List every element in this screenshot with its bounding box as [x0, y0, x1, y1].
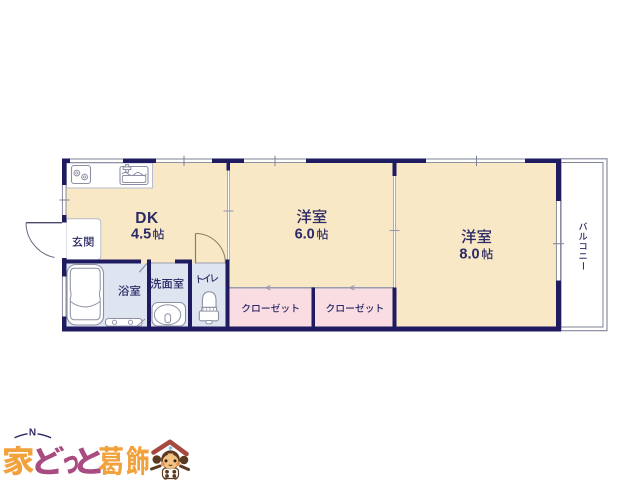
svg-text:6.0: 6.0 [295, 227, 315, 243]
svg-text:4.5: 4.5 [131, 227, 151, 243]
svg-text:N: N [29, 427, 36, 438]
svg-text:DK: DK [135, 210, 159, 227]
svg-text:8.0: 8.0 [459, 246, 479, 262]
